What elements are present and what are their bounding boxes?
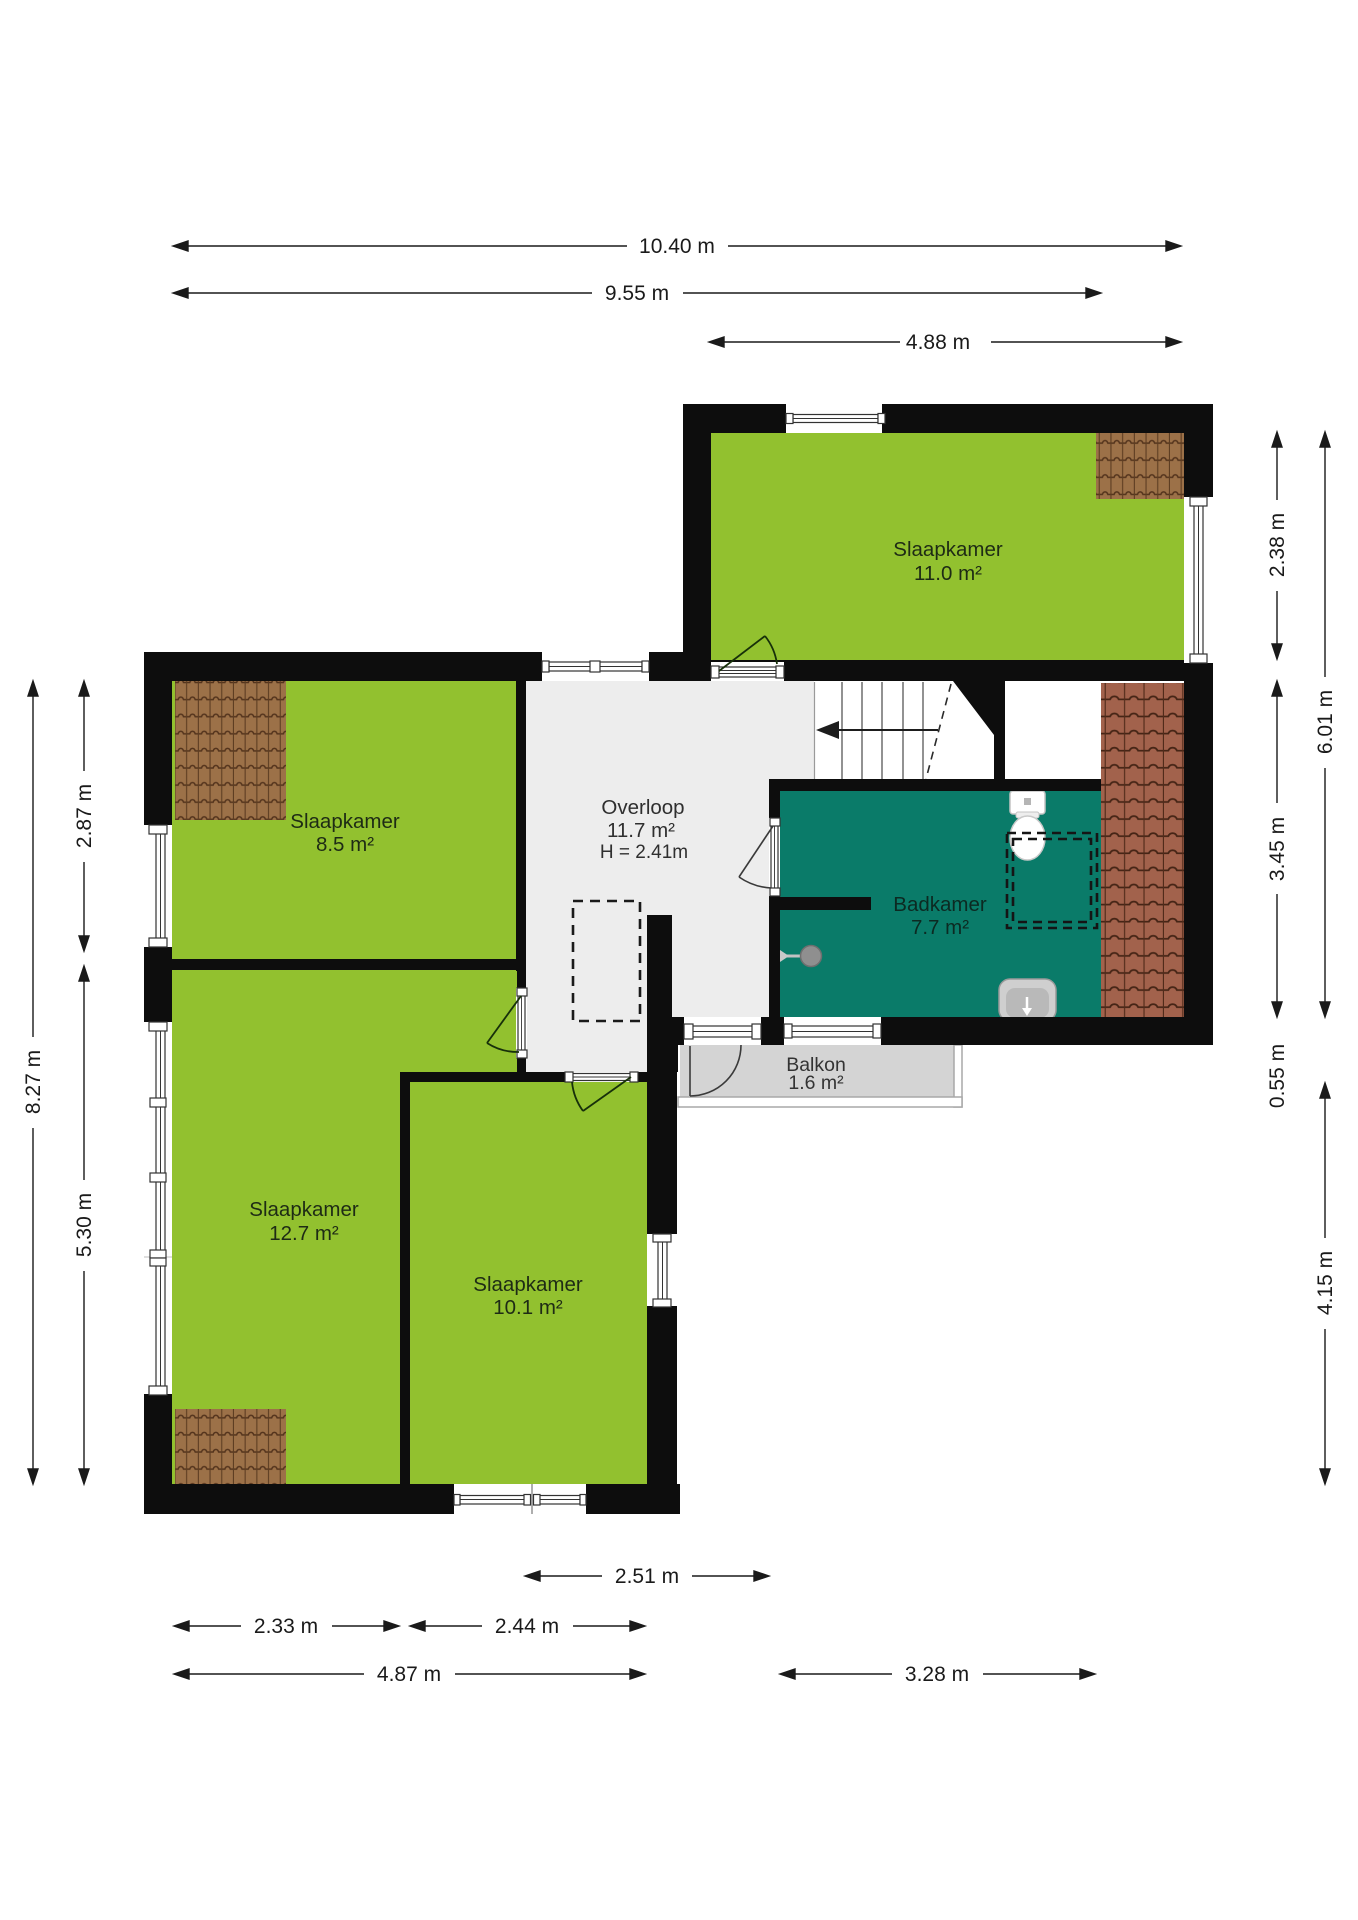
svg-text:2.38 m: 2.38 m [1266,513,1289,577]
svg-text:12.7 m²: 12.7 m² [269,1222,339,1245]
svg-text:7.7 m²: 7.7 m² [911,916,969,939]
svg-text:2.87 m: 2.87 m [73,784,96,848]
svg-text:10.1 m²: 10.1 m² [493,1296,563,1319]
svg-text:8.27 m: 8.27 m [22,1050,45,1114]
svg-text:2.33 m: 2.33 m [254,1615,318,1638]
svg-text:4.88 m: 4.88 m [906,331,970,354]
svg-text:Slaapkamer: Slaapkamer [473,1273,583,1296]
svg-text:Badkamer: Badkamer [893,893,987,916]
svg-text:3.45 m: 3.45 m [1266,817,1289,881]
svg-text:Slaapkamer: Slaapkamer [290,810,400,833]
svg-text:1.6 m²: 1.6 m² [788,1072,844,1094]
svg-text:9.55 m: 9.55 m [605,282,669,305]
svg-text:4.87 m: 4.87 m [377,1663,441,1686]
svg-text:H = 2.41m: H = 2.41m [600,842,688,863]
svg-text:8.5 m²: 8.5 m² [316,833,374,856]
svg-text:11.0 m²: 11.0 m² [914,562,982,585]
svg-text:11.7 m²: 11.7 m² [607,819,675,842]
svg-text:4.15 m: 4.15 m [1314,1251,1337,1315]
svg-text:2.44 m: 2.44 m [495,1615,559,1638]
svg-text:0.55 m: 0.55 m [1266,1044,1289,1108]
svg-text:Overloop: Overloop [601,796,684,819]
svg-text:5.30 m: 5.30 m [73,1193,96,1257]
svg-text:Slaapkamer: Slaapkamer [249,1198,359,1221]
svg-text:3.28 m: 3.28 m [905,1663,969,1686]
svg-text:Slaapkamer: Slaapkamer [893,538,1003,561]
svg-text:10.40 m: 10.40 m [639,235,715,258]
svg-text:6.01 m: 6.01 m [1314,690,1337,754]
svg-text:2.51 m: 2.51 m [615,1565,679,1588]
